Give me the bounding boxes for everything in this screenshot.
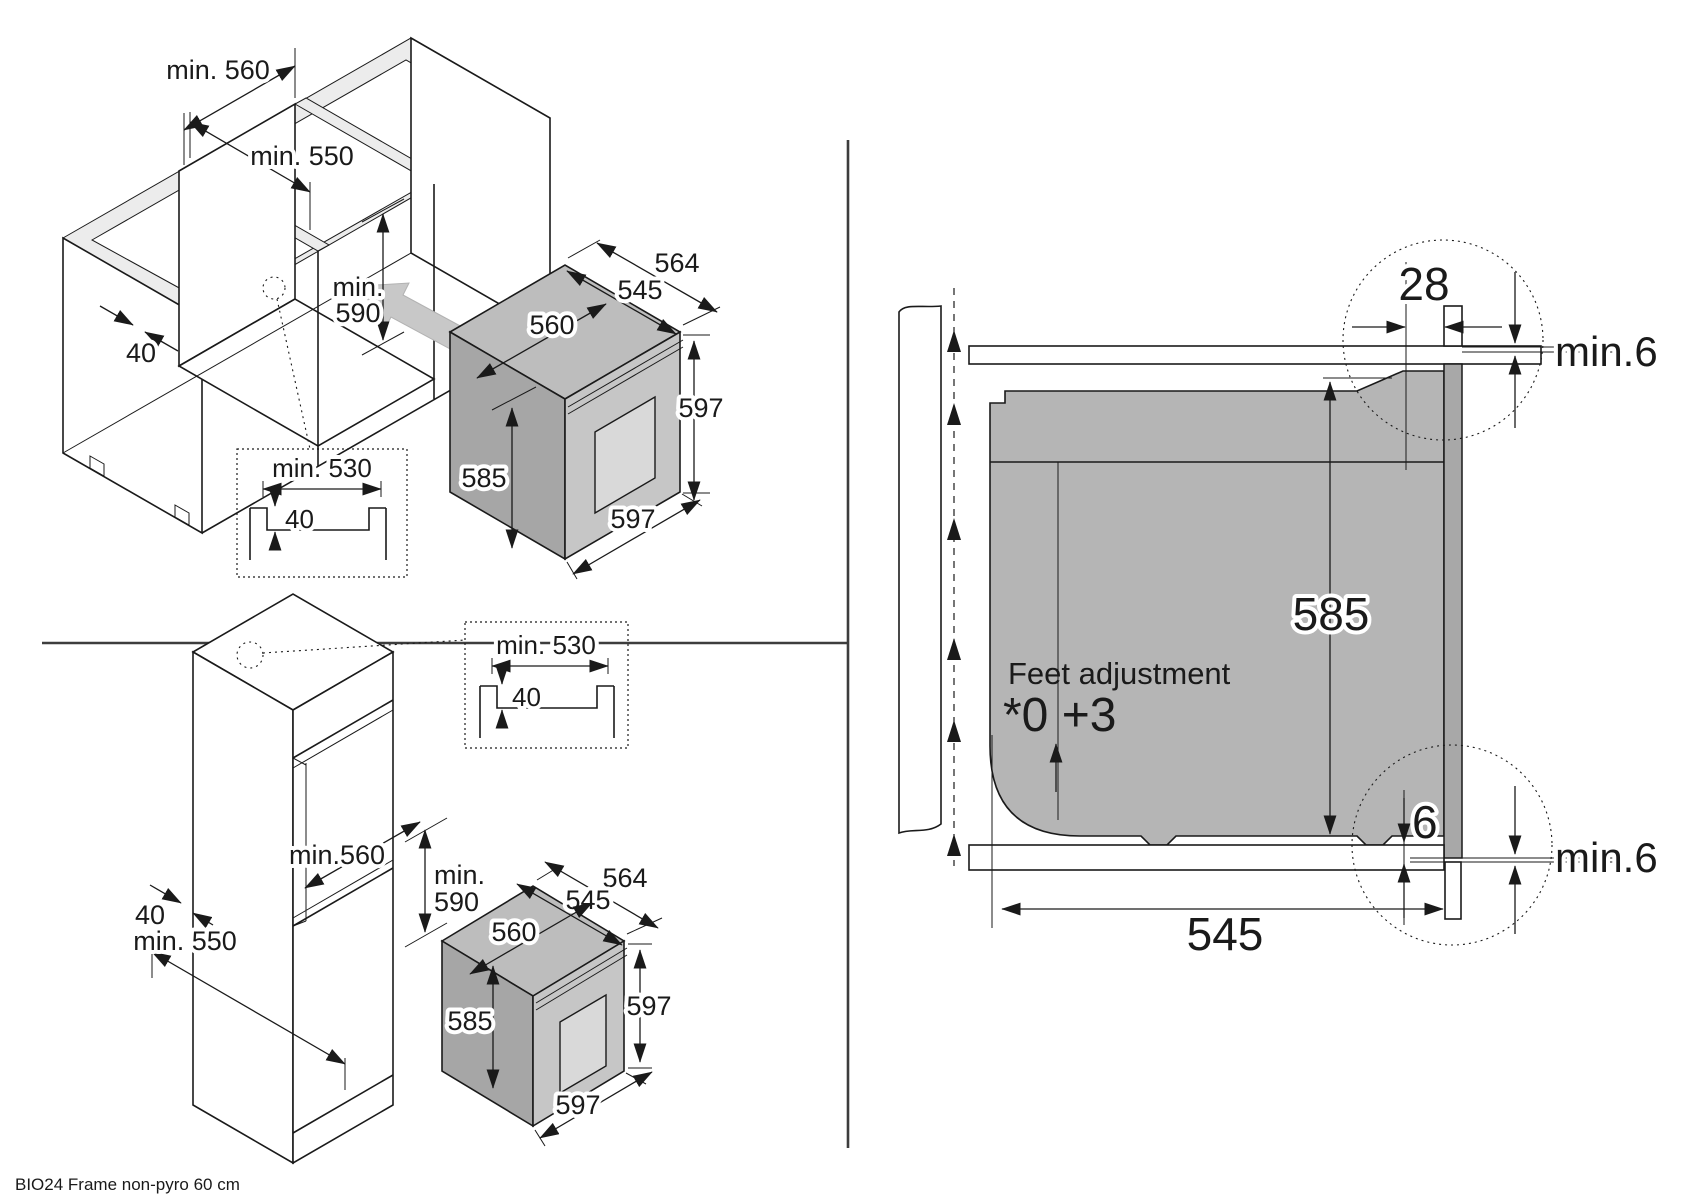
base-cabinet-view: min. 560 min. 550 min. 590 40 [63, 38, 724, 579]
dim-label-oven-585: 585 [461, 463, 506, 493]
dim-label-min6-top: min.6 [1555, 328, 1658, 375]
dim-label-niche-height-2: 590 [335, 298, 380, 328]
tall-detail-inset: min. 530 40 [465, 622, 628, 748]
cross-section-view: 28 min.6 585 Feet adjustment *0 +3 6 [899, 240, 1658, 960]
dim-label-niche-depth: min. 550 [133, 926, 237, 956]
dim-label-rail-width: 40 [126, 338, 156, 368]
dim-label-oven-564: 564 [654, 248, 699, 278]
dim-label-oven-597-front-width: 597 [555, 1090, 600, 1120]
dim-label-oven-585: 585 [447, 1006, 492, 1036]
airflow-line [947, 288, 961, 866]
drawing-title: BIO24 Frame non-pyro 60 cm [15, 1175, 240, 1194]
dim-label-6: 6 [1412, 796, 1438, 848]
dim-label-niche-height-2: 590 [434, 887, 479, 917]
dim-label-niche-width: min.560 [289, 840, 385, 870]
dim-label-oven-597-front-height: 597 [678, 393, 723, 423]
inset-width-label: min. 530 [272, 453, 372, 483]
door-bottom-edge [1445, 862, 1461, 919]
inset-channel-profile [250, 508, 386, 560]
dim-label-28: 28 [1398, 258, 1449, 310]
inset-depth-label: 40 [285, 504, 314, 534]
dim-label-oven-597-front-width: 597 [610, 504, 655, 534]
dim-label-oven-560: 560 [491, 917, 536, 947]
bottom-shelf [969, 845, 1444, 870]
oven-front-trim [1444, 364, 1462, 858]
dim-label-niche-height-1: min. [434, 860, 485, 890]
base-detail-inset: min. 530 40 [237, 449, 407, 577]
worktop-slab [969, 346, 1541, 364]
tall-cabinet-left-panel [193, 652, 293, 1163]
tall-cabinet-view: min. 530 40 min. 590 min.560 40 [133, 594, 671, 1163]
dim-label-oven-545: 545 [617, 275, 662, 305]
feet-adjustment-values: *0 +3 [1003, 689, 1116, 742]
rear-wall [899, 306, 941, 833]
inset-width-label: min. 530 [496, 630, 596, 660]
dim-label-min6-bottom: min.6 [1555, 834, 1658, 881]
dim-label-oven-560: 560 [529, 310, 574, 340]
feet-adjustment-title: Feet adjustment [1008, 656, 1231, 691]
trim-top-tab [1444, 306, 1462, 346]
dim-label-oven-545: 545 [565, 885, 610, 915]
dim-label-585: 585 [1293, 588, 1370, 640]
inset-channel-profile [480, 686, 614, 738]
installation-drawing-page: min. 560 min. 550 min. 590 40 [0, 0, 1697, 1200]
installation-drawing: min. 560 min. 550 min. 590 40 [0, 0, 1697, 1200]
dim-label-545: 545 [1187, 908, 1264, 960]
dim-label-oven-597-front-height: 597 [626, 991, 671, 1021]
dim-label-niche-depth: min. 550 [250, 141, 354, 171]
dim-label-niche-width: min. 560 [166, 55, 270, 85]
inset-depth-label: 40 [512, 682, 541, 712]
